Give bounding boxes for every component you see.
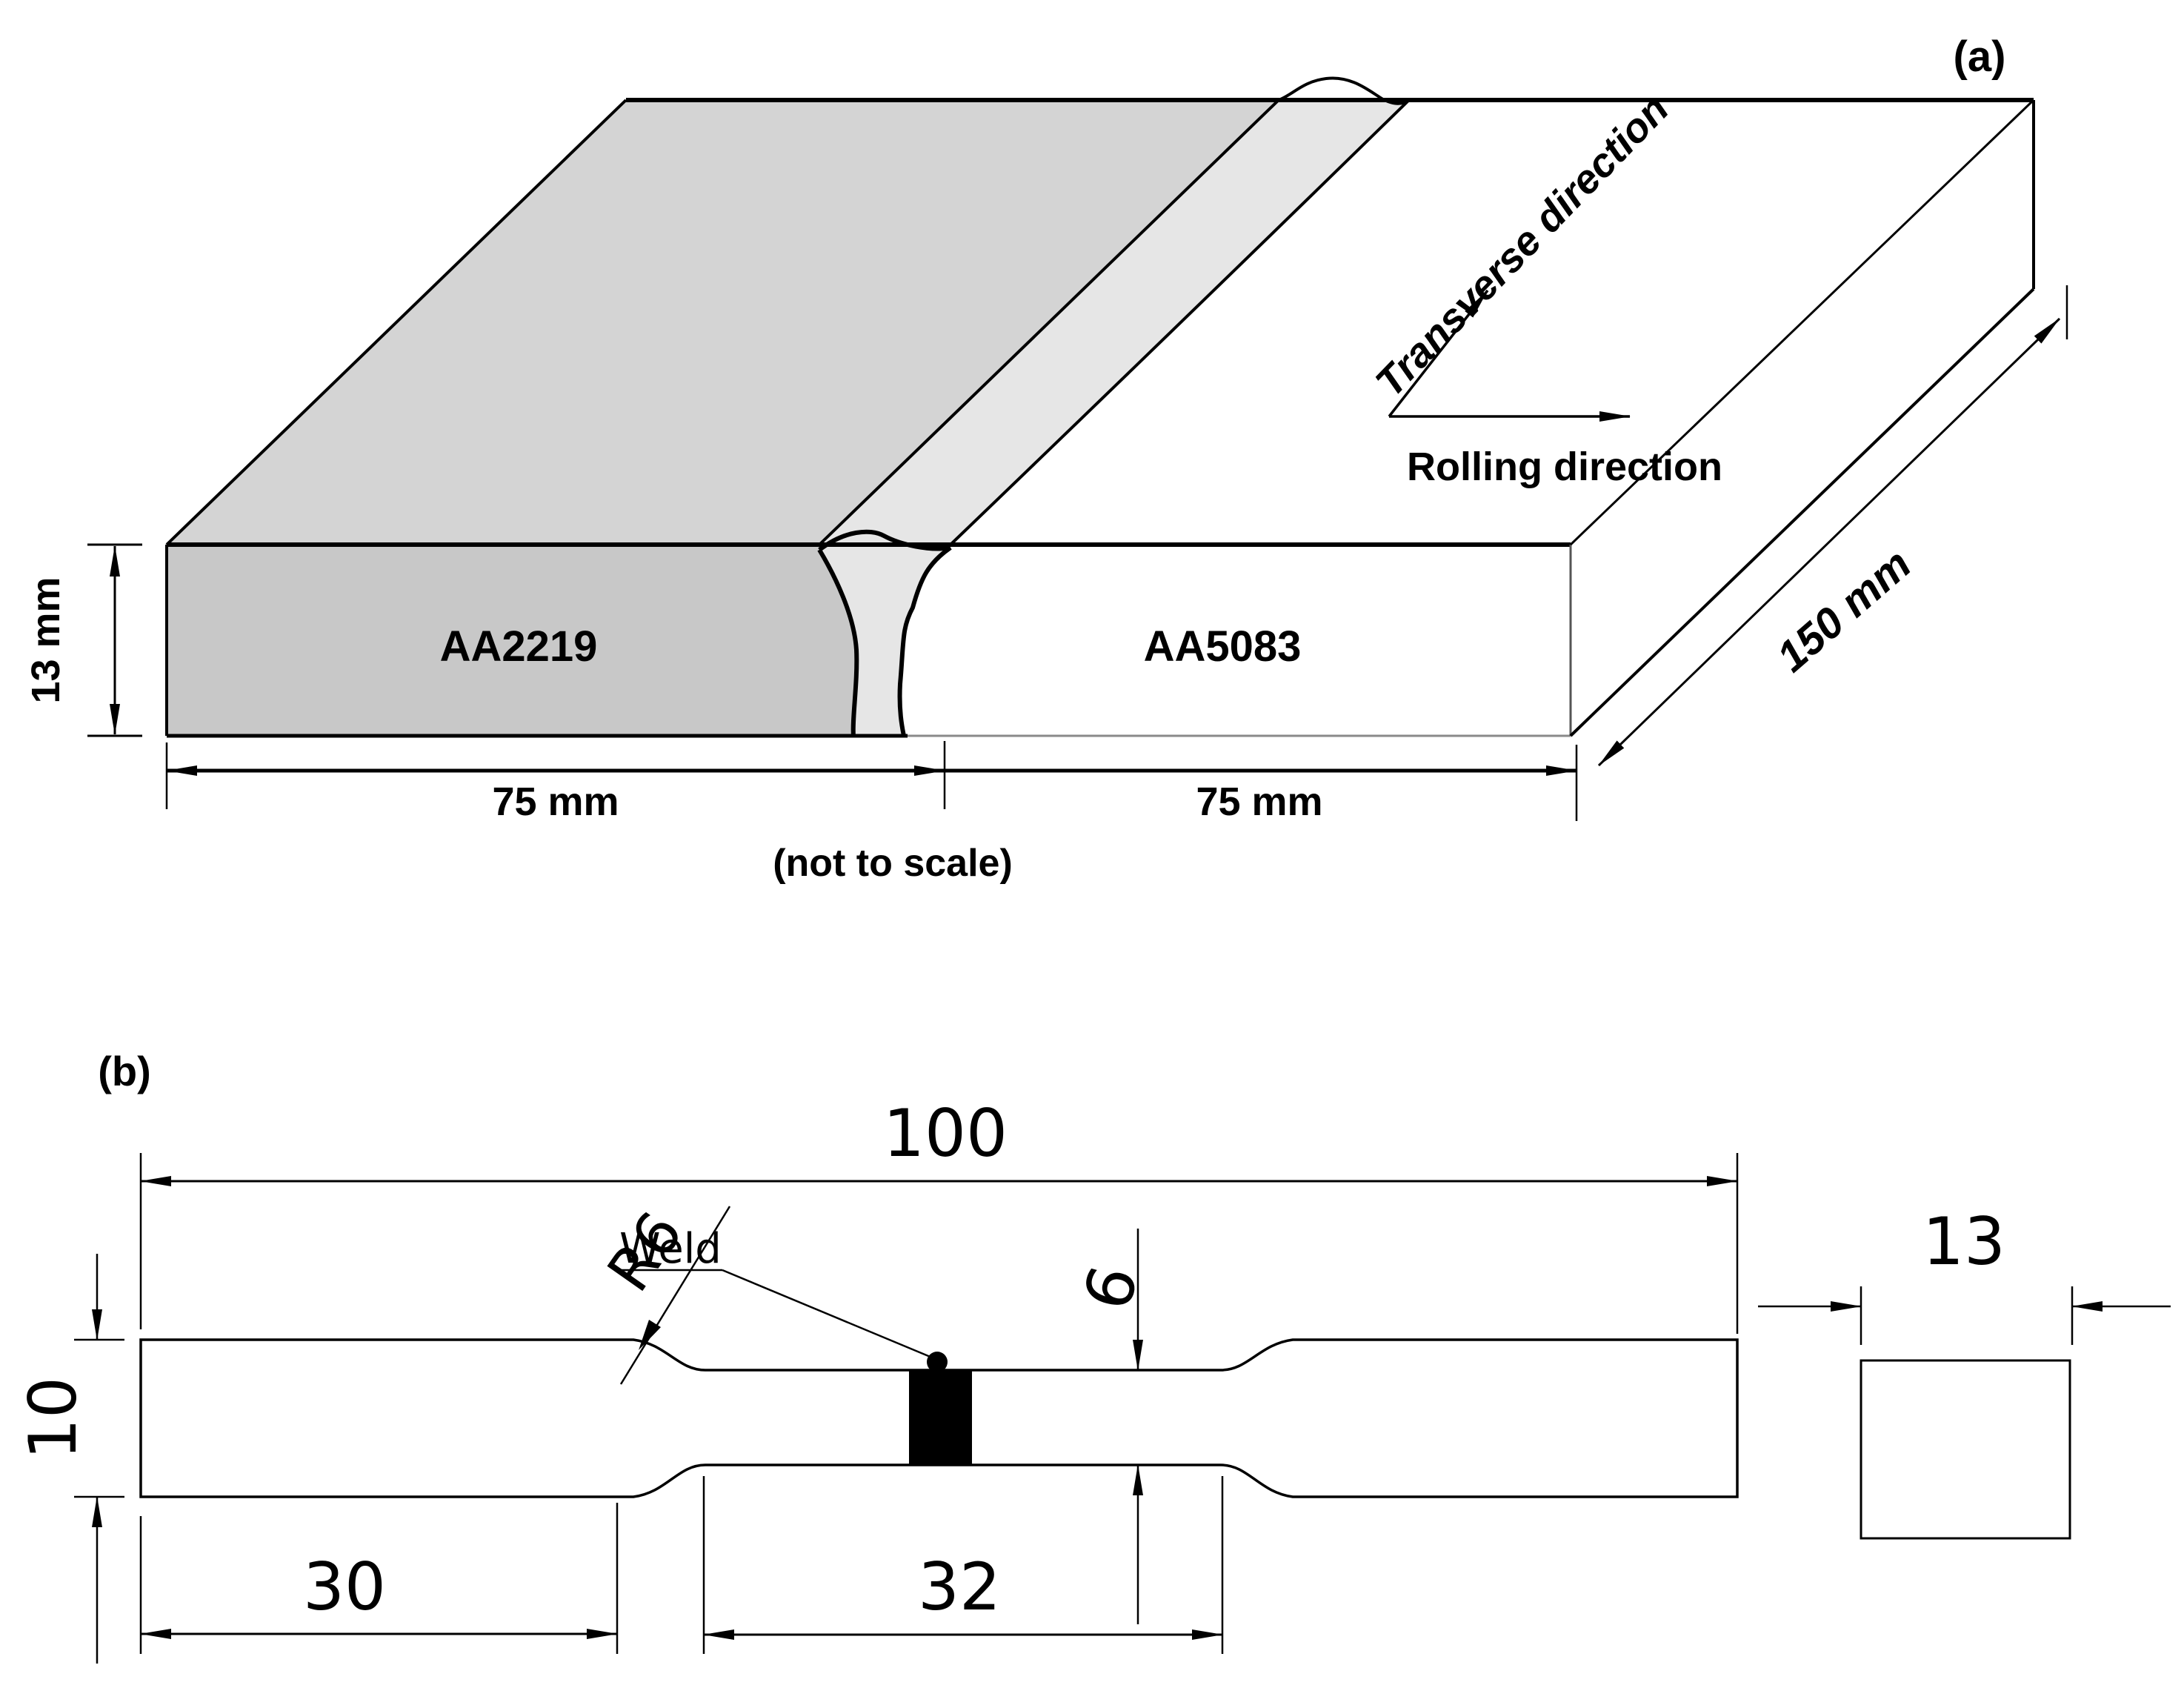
dim-6-label: 6 [1069, 1257, 1153, 1317]
dim-75mm-left-label: 75 mm [492, 780, 619, 824]
panel-b-labels: (b) 100 R6 Weld 6 10 30 32 13 [15, 1048, 2005, 1625]
panel-a-plate-diagram [87, 78, 2067, 821]
material-label-aa2219: AA2219 [440, 622, 598, 671]
weld-leader-dot [927, 1352, 948, 1372]
weld-label: Weld [619, 1225, 722, 1273]
not-to-scale-note: (not to scale) [773, 842, 1013, 885]
dim-13mm-label: 13 mm [24, 576, 68, 703]
rolling-direction-label: Rolling direction [1407, 445, 1722, 489]
cross-section-group [1758, 1286, 2171, 1538]
panel-a-label: (a) [1954, 33, 2006, 81]
dim-13-label: 13 [1922, 1203, 2005, 1280]
panel-b-label: (b) [98, 1048, 151, 1094]
dim-13mm-group [87, 545, 142, 736]
dim-100-label: 100 [883, 1095, 1008, 1172]
dim-10-label: 10 [15, 1377, 91, 1460]
weld-mark [909, 1370, 972, 1465]
dim-75mm-group [167, 741, 1577, 821]
dim-32-label: 32 [918, 1549, 1001, 1625]
dim-75mm-right-label: 75 mm [1196, 780, 1322, 824]
material-label-aa5083: AA5083 [1144, 622, 1302, 671]
dim-100-group [141, 1153, 1737, 1334]
dim-150mm-label: 150 mm [1768, 539, 1920, 681]
dim-30-label: 30 [303, 1549, 386, 1625]
weld-leader-line [722, 1270, 932, 1358]
cross-section-square [1861, 1360, 2070, 1538]
figure-canvas: (a) Transverse direction Rolling directi… [0, 0, 2184, 1688]
panel-b-specimen-diagram [74, 1153, 2171, 1664]
